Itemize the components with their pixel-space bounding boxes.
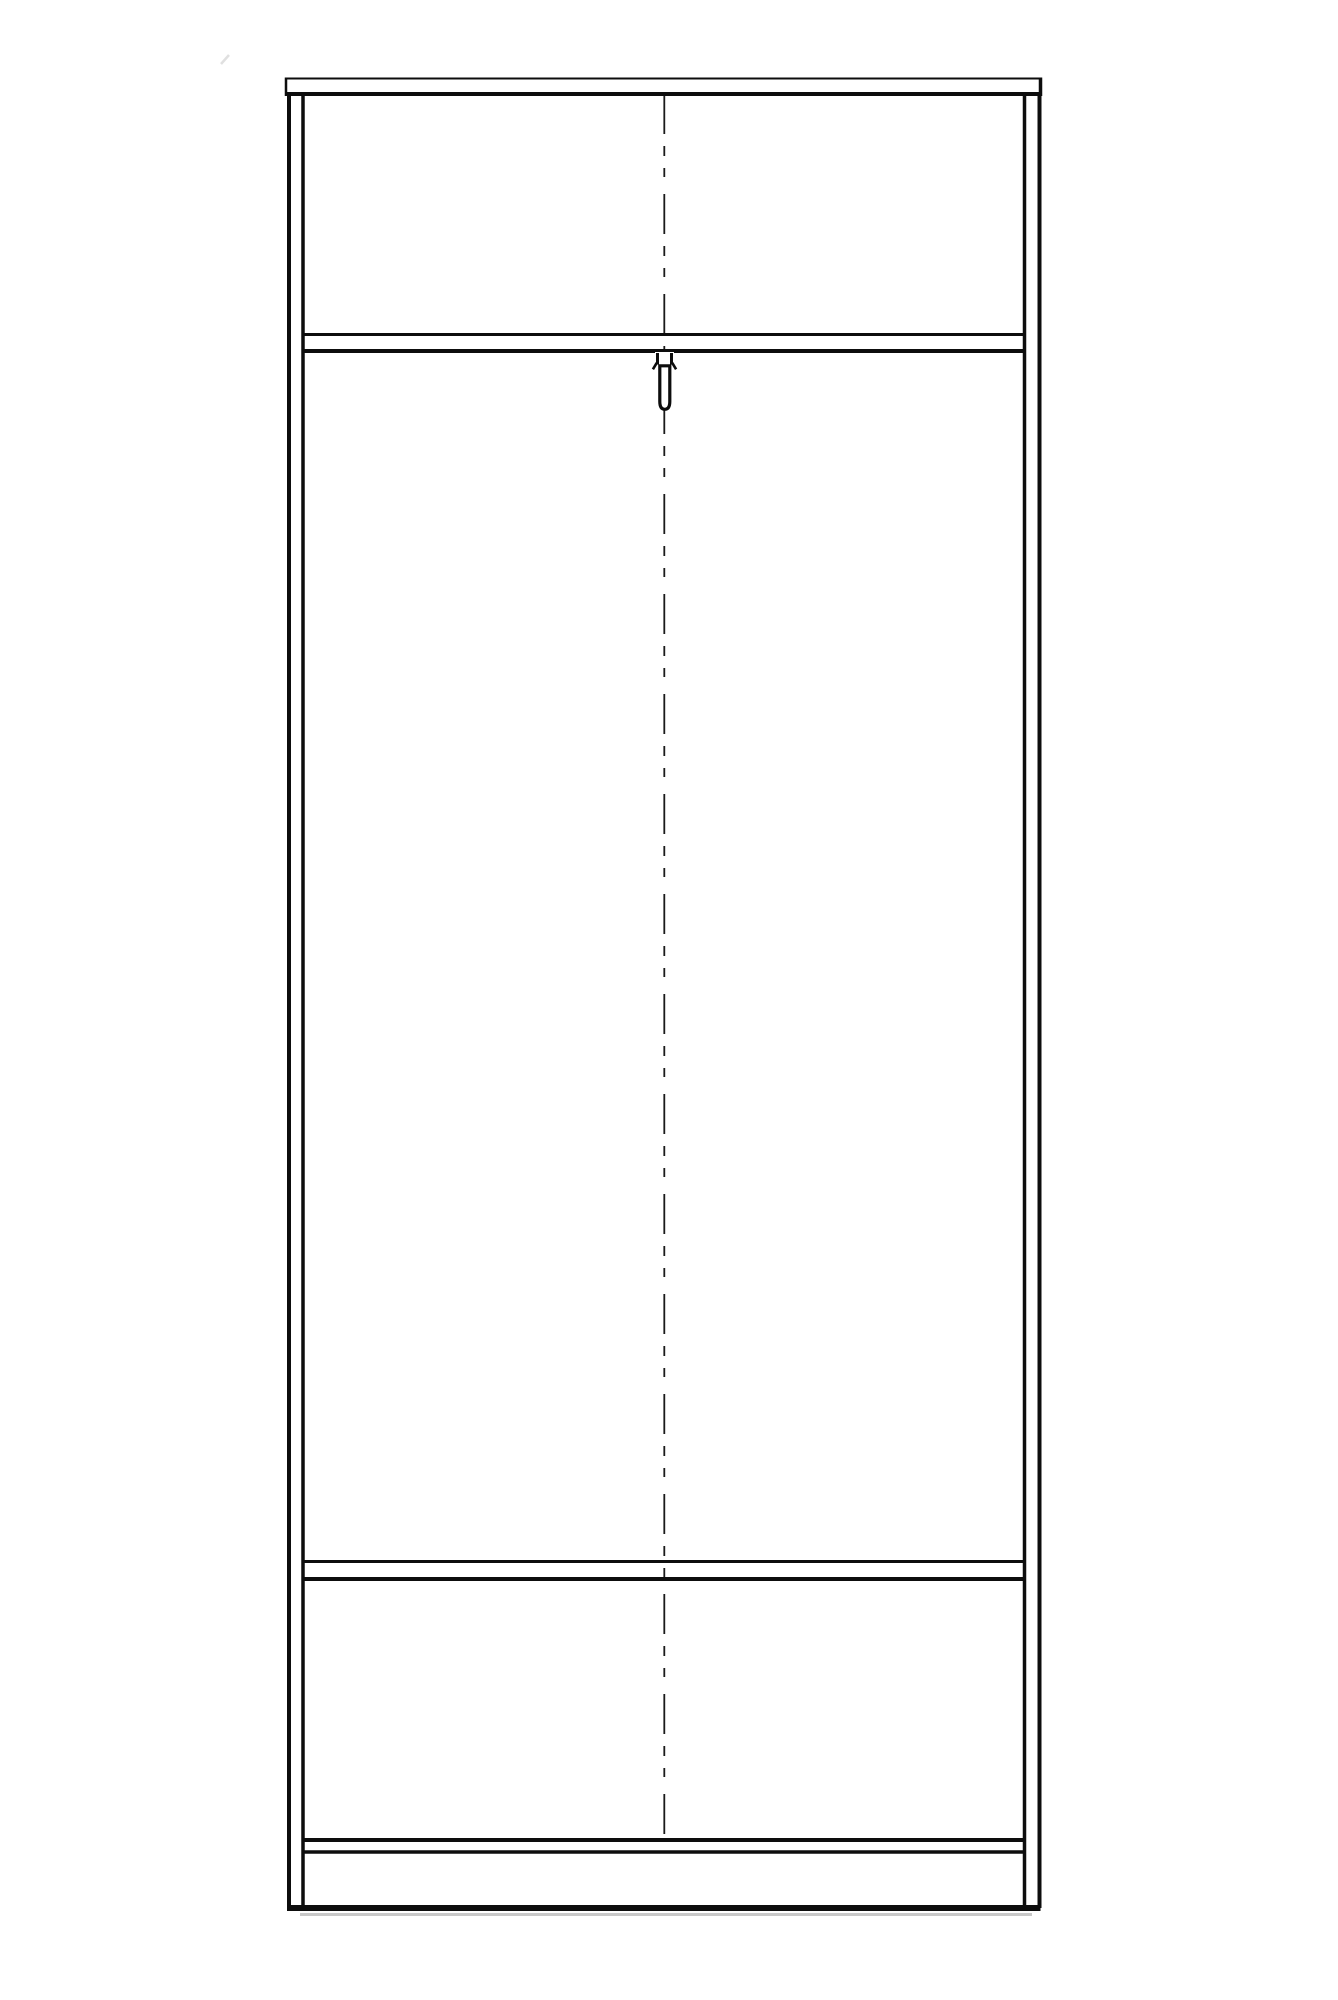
hanger-hook xyxy=(653,352,676,409)
right-side-panel xyxy=(1025,92,1040,1908)
drawing-canvas xyxy=(0,0,1338,2000)
left-side-panel xyxy=(289,92,303,1908)
wardrobe-front-elevation-drawing xyxy=(0,0,1338,2000)
hook-barb-left xyxy=(653,363,657,370)
hook-loop xyxy=(660,366,670,410)
top-panel xyxy=(285,78,1042,97)
hook-barb-right xyxy=(672,363,676,370)
bottom-panel xyxy=(305,1840,1024,1852)
scan-artifact-mark xyxy=(221,55,229,64)
